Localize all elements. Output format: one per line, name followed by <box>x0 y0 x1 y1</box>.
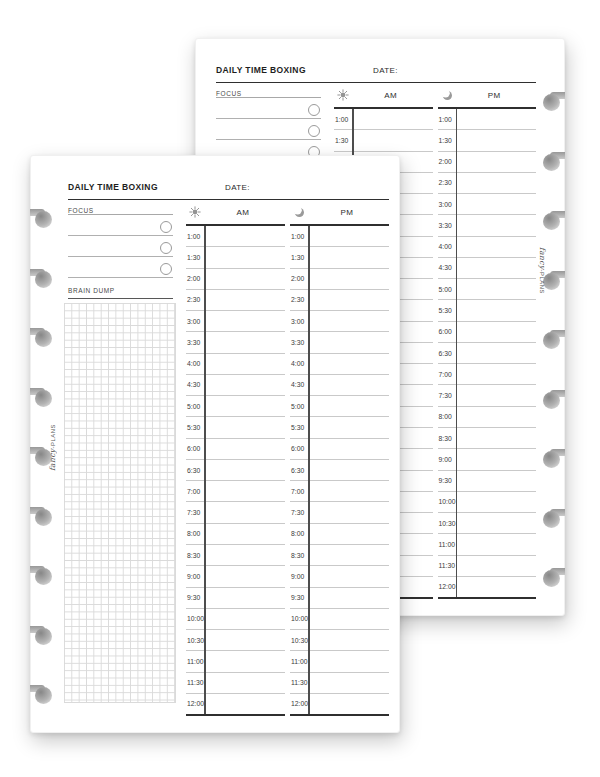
am-column-header: AM <box>334 83 433 107</box>
time-label: 8:00 <box>438 413 456 420</box>
time-label: 6:30 <box>290 467 308 474</box>
time-label: 7:00 <box>186 488 204 495</box>
time-label: 6:00 <box>438 328 456 335</box>
focus-label: FOCUS <box>216 83 321 97</box>
time-label: 3:00 <box>290 318 308 325</box>
time-row: 2:00 <box>438 152 537 173</box>
time-label: 9:30 <box>438 477 456 484</box>
time-label: 3:30 <box>186 339 204 346</box>
time-label: 4:30 <box>438 264 456 271</box>
time-row: 11:30 <box>186 673 285 694</box>
time-row: 10:30 <box>290 630 389 651</box>
focus-circle-icon <box>308 104 320 116</box>
time-row: 6:30 <box>290 460 389 481</box>
time-label: 2:30 <box>290 296 308 303</box>
time-row: 12:00 <box>186 694 285 714</box>
time-row: 4:30 <box>438 258 537 279</box>
time-row: 8:00 <box>186 524 285 545</box>
time-row: 5:30 <box>290 417 389 438</box>
time-label: 1:00 <box>290 233 308 240</box>
time-row: 7:30 <box>290 502 389 523</box>
time-row: 6:00 <box>186 439 285 460</box>
time-row: 8:00 <box>438 407 537 428</box>
time-row: 7:00 <box>438 364 537 385</box>
time-label: 9:00 <box>186 573 204 580</box>
time-label: 1:30 <box>334 137 352 144</box>
time-label: 12:00 <box>186 700 204 707</box>
time-row: 1:00 <box>438 109 537 130</box>
time-row: 4:00 <box>438 237 537 258</box>
time-label: 6:00 <box>186 445 204 452</box>
time-label: 11:00 <box>186 658 204 665</box>
time-label: 2:00 <box>290 275 308 282</box>
time-label: 10:00 <box>438 498 456 505</box>
time-row: 10:00 <box>438 492 537 513</box>
focus-row <box>68 236 173 257</box>
time-row: 12:00 <box>290 694 389 714</box>
pm-label: PM <box>453 91 537 100</box>
focus-rows <box>216 97 321 161</box>
pm-time-grid: 1:00 1:30 2:00 2:30 3:00 3:30 4:00 <box>290 224 389 716</box>
time-label: 4:00 <box>438 243 456 250</box>
time-row: 5:30 <box>186 417 285 438</box>
time-row: 9:30 <box>290 588 389 609</box>
time-label: 8:30 <box>290 552 308 559</box>
time-label: 10:00 <box>186 615 204 622</box>
time-label: 2:00 <box>438 158 456 165</box>
brain-dump-grid <box>64 303 176 703</box>
focus-circle-icon <box>160 221 172 233</box>
time-row: 10:30 <box>186 630 285 651</box>
time-row: 2:30 <box>186 290 285 311</box>
time-row: 9:30 <box>186 588 285 609</box>
focus-row <box>216 98 321 119</box>
time-row: 3:00 <box>438 194 537 215</box>
time-label: 3:30 <box>290 339 308 346</box>
page-header: DAILY TIME BOXING DATE: <box>68 182 389 196</box>
time-label: 1:00 <box>186 233 204 240</box>
time-label: 10:30 <box>290 637 308 644</box>
time-label: 5:30 <box>438 307 456 314</box>
pm-column-header: PM <box>290 200 389 224</box>
pm-column-header: PM <box>438 83 537 107</box>
time-label: 11:00 <box>438 541 456 548</box>
time-label: 10:30 <box>186 637 204 644</box>
time-row: 7:00 <box>290 481 389 502</box>
time-label: 2:30 <box>438 179 456 186</box>
focus-circle-icon <box>160 242 172 254</box>
time-label: 9:00 <box>438 456 456 463</box>
focus-circle-icon <box>308 125 320 137</box>
time-label: 11:00 <box>290 658 308 665</box>
time-label: 11:30 <box>438 562 456 569</box>
time-label: 1:30 <box>438 137 456 144</box>
time-row: 1:30 <box>186 247 285 268</box>
time-row: 1:30 <box>290 247 389 268</box>
time-label: 7:30 <box>438 392 456 399</box>
sun-icon <box>337 89 349 101</box>
time-label: 8:30 <box>186 552 204 559</box>
time-row: 6:30 <box>186 460 285 481</box>
time-label: 10:00 <box>290 615 308 622</box>
date-label: DATE: <box>225 183 250 192</box>
time-row: 2:00 <box>290 269 389 290</box>
am-time-grid: 1:00 1:30 2:00 2:30 3:00 3:30 4:00 <box>186 224 285 716</box>
pm-time-grid: 1:00 1:30 2:00 2:30 3:00 3:30 4:00 <box>438 107 537 599</box>
time-row: 6:00 <box>290 439 389 460</box>
time-row: 3:30 <box>290 332 389 353</box>
time-label: 2:30 <box>186 296 204 303</box>
time-label: 3:00 <box>186 318 204 325</box>
time-label: 9:30 <box>290 594 308 601</box>
brain-dump-rule <box>68 298 173 299</box>
time-label: 4:30 <box>186 381 204 388</box>
time-label: 11:30 <box>290 679 308 686</box>
time-row: 11:30 <box>438 556 537 577</box>
time-row: 8:00 <box>290 524 389 545</box>
time-row: 7:00 <box>186 481 285 502</box>
time-label: 3:30 <box>438 222 456 229</box>
page-header: DAILY TIME BOXING DATE: <box>216 65 536 79</box>
am-column: AM 1:00 1:30 2:00 2:30 3:00 3 <box>186 200 285 716</box>
time-row: 3:30 <box>438 215 537 236</box>
time-row: 3:30 <box>186 332 285 353</box>
am-label: AM <box>201 208 285 217</box>
time-row: 12:00 <box>438 577 537 597</box>
time-label: 8:00 <box>290 530 308 537</box>
time-row: 8:30 <box>290 545 389 566</box>
time-row: 9:00 <box>438 449 537 470</box>
time-row: 7:30 <box>438 385 537 406</box>
time-row: 5:00 <box>290 396 389 417</box>
time-row: 1:30 <box>334 130 433 151</box>
time-label: 1:30 <box>290 254 308 261</box>
time-label: 1:00 <box>334 116 352 123</box>
time-row: 4:30 <box>290 375 389 396</box>
time-label: 11:30 <box>186 679 204 686</box>
time-label: 2:00 <box>186 275 204 282</box>
page-content: DAILY TIME BOXING DATE: FOCUS BRAIN DUMP <box>31 156 399 732</box>
focus-row <box>68 215 173 236</box>
time-row: 9:30 <box>438 471 537 492</box>
time-row: 11:00 <box>186 651 285 672</box>
sections: FOCUS BRAIN DUMP <box>68 200 389 716</box>
time-row: 6:00 <box>438 322 537 343</box>
moon-icon <box>293 206 305 218</box>
time-label: 3:00 <box>438 201 456 208</box>
pm-column: PM 1:00 1:30 2:00 2:30 3:00 3 <box>290 200 389 716</box>
time-label: 4:00 <box>186 360 204 367</box>
am-column-header: AM <box>186 200 285 224</box>
time-label: 1:00 <box>438 116 456 123</box>
planner-page-front: fancy-PLANS DAILY TIME BOXING DATE: FOCU… <box>30 155 400 733</box>
brain-dump-label: BRAIN DUMP <box>68 287 173 294</box>
am-label: AM <box>349 91 433 100</box>
time-label: 7:00 <box>438 371 456 378</box>
time-row: 10:30 <box>438 513 537 534</box>
time-row: 5:00 <box>438 279 537 300</box>
time-row: 5:30 <box>438 300 537 321</box>
time-row: 7:30 <box>186 502 285 523</box>
focus-row <box>216 119 321 140</box>
time-row: 9:00 <box>186 566 285 587</box>
time-label: 5:30 <box>290 424 308 431</box>
time-label: 6:30 <box>186 467 204 474</box>
time-row: 11:00 <box>438 534 537 555</box>
sun-icon <box>189 206 201 218</box>
time-row: 2:00 <box>186 269 285 290</box>
time-label: 12:00 <box>290 700 308 707</box>
time-label: 9:00 <box>290 573 308 580</box>
focus-section: FOCUS BRAIN DUMP <box>68 200 173 716</box>
focus-row <box>68 257 173 278</box>
time-row: 3:00 <box>290 311 389 332</box>
moon-icon <box>441 89 453 101</box>
pm-column: PM 1:00 1:30 2:00 2:30 3:00 3 <box>438 83 537 599</box>
time-row: 3:00 <box>186 311 285 332</box>
time-row: 10:00 <box>290 609 389 630</box>
focus-label: FOCUS <box>68 200 173 214</box>
time-label: 7:00 <box>290 488 308 495</box>
focus-rows <box>68 214 173 278</box>
time-label: 4:00 <box>290 360 308 367</box>
time-label: 9:30 <box>186 594 204 601</box>
time-label: 10:30 <box>438 520 456 527</box>
time-label: 12:00 <box>438 583 456 590</box>
pm-label: PM <box>305 208 389 217</box>
time-row: 5:00 <box>186 396 285 417</box>
time-row: 4:00 <box>290 354 389 375</box>
time-label: 8:30 <box>438 435 456 442</box>
time-label: 7:30 <box>186 509 204 516</box>
time-row: 11:30 <box>290 673 389 694</box>
time-label: 6:00 <box>290 445 308 452</box>
time-row: 10:00 <box>186 609 285 630</box>
time-row: 9:00 <box>290 566 389 587</box>
date-label: DATE: <box>373 66 398 75</box>
time-label: 5:30 <box>186 424 204 431</box>
time-row: 1:30 <box>438 130 537 151</box>
time-row: 1:00 <box>290 226 389 247</box>
time-label: 5:00 <box>290 403 308 410</box>
time-label: 6:30 <box>438 350 456 357</box>
time-label: 4:30 <box>290 381 308 388</box>
time-row: 8:30 <box>438 428 537 449</box>
time-row: 11:00 <box>290 651 389 672</box>
time-label: 7:30 <box>290 509 308 516</box>
time-row: 4:30 <box>186 375 285 396</box>
time-row: 1:00 <box>334 109 433 130</box>
planner-mockup: fancy-PLANS DAILY TIME BOXING DATE: FOCU… <box>0 0 600 777</box>
time-row: 4:00 <box>186 354 285 375</box>
time-label: 5:00 <box>186 403 204 410</box>
time-row: 8:30 <box>186 545 285 566</box>
time-row: 2:30 <box>438 173 537 194</box>
time-label: 8:00 <box>186 530 204 537</box>
focus-circle-icon <box>160 263 172 275</box>
time-label: 1:30 <box>186 254 204 261</box>
time-row: 6:30 <box>438 343 537 364</box>
time-row: 1:00 <box>186 226 285 247</box>
time-row: 2:30 <box>290 290 389 311</box>
time-label: 5:00 <box>438 286 456 293</box>
